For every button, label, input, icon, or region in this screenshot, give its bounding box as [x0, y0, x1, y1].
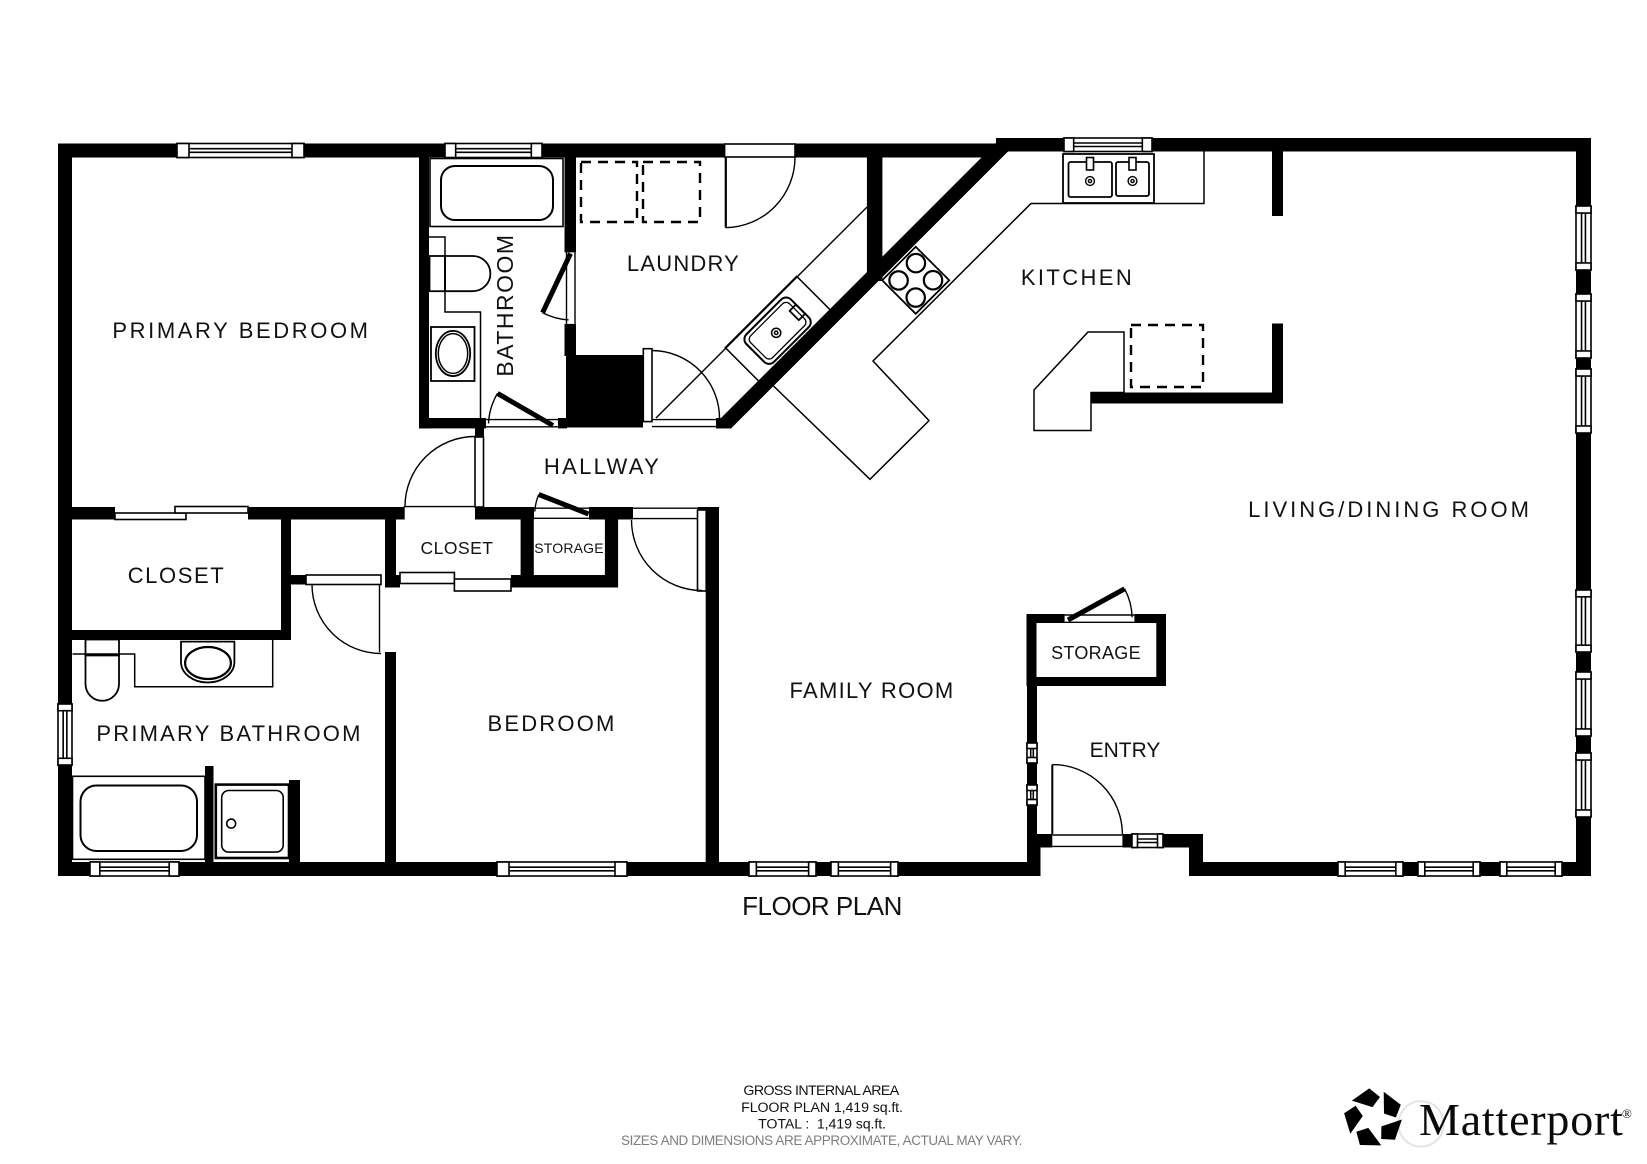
- svg-text:FLOOR PLAN: FLOOR PLAN: [742, 891, 902, 921]
- svg-text:FLOOR PLAN 1,419 sq.ft.: FLOOR PLAN 1,419 sq.ft.: [741, 1100, 903, 1116]
- svg-text:Matterport: Matterport: [1419, 1094, 1624, 1145]
- svg-text:SIZES AND DIMENSIONS ARE APPRO: SIZES AND DIMENSIONS ARE APPROXIMATE, AC…: [621, 1133, 1022, 1148]
- svg-text:®: ®: [1622, 1106, 1632, 1121]
- svg-text:PRIMARY BATHROOM: PRIMARY BATHROOM: [96, 721, 362, 746]
- svg-text:PRIMARY BEDROOM: PRIMARY BEDROOM: [112, 318, 370, 343]
- svg-text:STORAGE: STORAGE: [534, 540, 604, 556]
- svg-text:GROSS INTERNAL AREA: GROSS INTERNAL AREA: [743, 1083, 899, 1099]
- svg-text:FAMILY ROOM: FAMILY ROOM: [789, 678, 954, 703]
- svg-text:CLOSET: CLOSET: [128, 563, 226, 588]
- svg-text:BEDROOM: BEDROOM: [487, 711, 616, 736]
- svg-text:HALLWAY: HALLWAY: [544, 454, 661, 479]
- svg-text:ENTRY: ENTRY: [1090, 739, 1161, 762]
- svg-text:LAUNDRY: LAUNDRY: [627, 251, 740, 276]
- svg-text:BATHROOM: BATHROOM: [492, 233, 518, 376]
- svg-text:STORAGE: STORAGE: [1051, 643, 1141, 663]
- svg-text:KITCHEN: KITCHEN: [1021, 265, 1134, 290]
- svg-text:TOTAL : 1,419 sq.ft.: TOTAL : 1,419 sq.ft.: [758, 1117, 886, 1133]
- svg-text:CLOSET: CLOSET: [420, 538, 493, 558]
- svg-text:LIVING/DINING ROOM: LIVING/DINING ROOM: [1248, 497, 1532, 522]
